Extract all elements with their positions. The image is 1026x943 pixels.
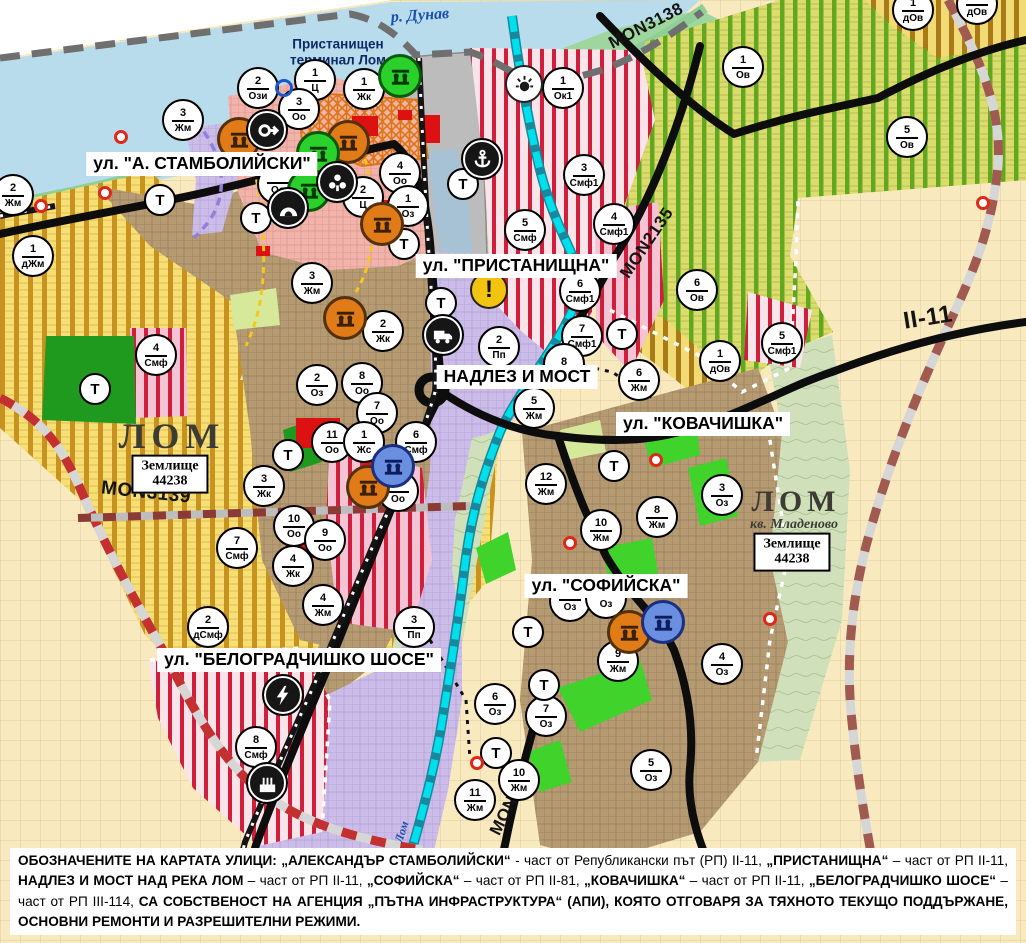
zone-number: 3: [581, 162, 587, 174]
zone-number: 5: [531, 395, 537, 407]
zone-number: 12: [540, 471, 552, 483]
zone-code: Оо: [287, 529, 301, 540]
fraction-bar: [304, 80, 326, 82]
fraction-bar: [508, 780, 530, 782]
transport-marker[interactable]: Т: [528, 669, 560, 701]
fraction-bar: [197, 627, 219, 629]
note-segment: „ПРИСТАНИЩНА“: [766, 853, 888, 868]
zone-number: 2: [360, 184, 366, 196]
fraction-bar: [552, 88, 574, 90]
zone-number: 8: [654, 504, 660, 516]
zone-number: 4: [320, 592, 326, 604]
zone-code: Смф1: [566, 294, 595, 305]
zone-marker[interactable]: 1дОв: [892, 0, 934, 31]
transport-marker[interactable]: Т: [598, 450, 630, 482]
zone-code: Оо: [391, 494, 405, 505]
fraction-bar: [535, 484, 557, 486]
zone-code: Жм: [538, 487, 554, 498]
poi-dot[interactable]: [470, 756, 484, 770]
zone-marker[interactable]: 7Смф: [216, 527, 258, 569]
street-label: НАДЛЕЗ И МОСТ: [437, 365, 598, 389]
road-label: II-11: [902, 300, 955, 335]
zone-code: Жм: [5, 198, 21, 209]
fraction-bar: [267, 182, 289, 184]
zone-marker[interactable]: 3Пп: [393, 606, 435, 648]
fraction-bar: [282, 566, 304, 568]
zone-marker[interactable]: 3Жм: [162, 99, 204, 141]
box-line1: Землище: [141, 459, 198, 474]
zone-marker[interactable]: 4Оз: [701, 643, 743, 685]
zone-marker[interactable]: 2Ози: [237, 67, 279, 109]
zone-marker[interactable]: 10Жм: [580, 509, 622, 551]
land-register-box: Землище44238: [753, 533, 830, 572]
street-label: ул. "ПРИСТАНИЩНА": [416, 254, 617, 278]
transport-marker[interactable]: Т: [79, 373, 111, 405]
zone-number: 1: [361, 76, 367, 88]
zone-marker[interactable]: 2Жм: [0, 174, 34, 216]
fraction-bar: [312, 605, 334, 607]
zone-number: 3: [719, 482, 725, 494]
zone-marker[interactable]: 8Жм: [636, 496, 678, 538]
fraction-bar: [253, 486, 275, 488]
note-segment: – част от РП II-11,: [243, 873, 366, 888]
zone-code: Жс: [357, 445, 372, 456]
fraction-bar: [351, 383, 373, 385]
fraction-bar: [306, 385, 328, 387]
zone-marker[interactable]: 1дОв: [699, 340, 741, 382]
zone-marker[interactable]: 2Пп: [478, 326, 520, 368]
fraction-bar: [523, 408, 545, 410]
fraction-bar: [283, 526, 305, 528]
zone-marker[interactable]: 8Смф: [235, 726, 277, 768]
zoning-map: 2Ози1Ц1Жк3Жм3ОоОо4Оо2Ц1Оз2Жм1дЖм4Смф1Ок1…: [0, 0, 1026, 943]
zone-number: 1: [560, 75, 566, 87]
water-label: Лом: [391, 819, 412, 845]
zone-number: 3: [309, 270, 315, 282]
zone-number: 1: [717, 348, 723, 360]
fraction-bar: [321, 442, 343, 444]
zone-number: 2: [205, 614, 211, 626]
zone-marker[interactable]: 4Смф: [135, 334, 177, 376]
zone-code: Ов: [736, 70, 750, 81]
fraction-bar: [247, 88, 269, 90]
street-label: ул. "А. СТАМБОЛИЙСКИ": [86, 152, 317, 176]
zone-code: Оз: [716, 667, 729, 678]
zone-marker[interactable]: 6Жм: [618, 359, 660, 401]
box-line2: 44238: [763, 552, 820, 567]
zone-marker[interactable]: 4Жк: [272, 545, 314, 587]
water-label: р. Дунав: [390, 5, 450, 27]
fraction-bar: [397, 206, 419, 208]
note-segment: – част от РП II-81,: [460, 873, 584, 888]
zone-number: 1: [312, 67, 318, 79]
zone-code: Оз: [311, 388, 324, 399]
zone-number: 1: [30, 243, 36, 255]
note-segment: - част от Републикански път (РП) II-11,: [511, 853, 767, 868]
zone-number: 5: [522, 217, 528, 229]
zone-marker[interactable]: 1дОв: [956, 0, 998, 25]
zone-code: Ов: [900, 140, 914, 151]
zone-code: Оз: [600, 599, 613, 610]
zone-number: 4: [719, 651, 725, 663]
zone-marker[interactable]: 5Жм: [513, 387, 555, 429]
fraction-bar: [896, 137, 918, 139]
zone-marker[interactable]: 1Ок1: [542, 67, 584, 109]
zone-marker[interactable]: 5Ов: [886, 116, 928, 158]
note-segment: „КОВАЧИШКА“: [584, 873, 685, 888]
zone-number: 7: [543, 703, 549, 715]
zone-marker[interactable]: 5Смф1: [761, 322, 803, 364]
zone-number: 8: [359, 370, 365, 382]
fraction-bar: [711, 495, 733, 497]
fraction-bar: [484, 704, 506, 706]
fraction-bar: [535, 716, 557, 718]
zone-code: Оз: [564, 602, 577, 613]
zone-code: Ц: [311, 83, 318, 94]
street-label: ул. "БЕЛОГРАДЧИШКО ШОСЕ": [157, 648, 441, 672]
note-segment: „СОФИЙСКА“: [367, 873, 460, 888]
zone-code: Жм: [526, 411, 542, 422]
zone-marker[interactable]: 2Оз: [296, 364, 338, 406]
zone-code: Жм: [610, 664, 626, 675]
fraction-bar: [353, 89, 375, 91]
street-label: ул. "СОФИЙСКА": [525, 574, 688, 598]
zone-code: Смф1: [600, 227, 629, 238]
zone-number: 2: [314, 372, 320, 384]
road-label: MON3138: [605, 0, 686, 53]
poi-dot[interactable]: [114, 130, 128, 144]
poi-dot[interactable]: [98, 186, 112, 200]
map-overlay: 2Ози1Ц1Жк3Жм3ОоОо4Оо2Ц1Оз2Жм1дЖм4Смф1Ок1…: [0, 0, 1026, 943]
zone-number: 10: [595, 517, 607, 529]
fraction-bar: [771, 343, 793, 345]
zone-code: Оз: [489, 707, 502, 718]
fraction-bar: [514, 230, 536, 232]
zone-code: Оз: [716, 498, 729, 509]
fraction-bar: [403, 627, 425, 629]
zone-code: Оз: [540, 719, 553, 730]
zone-marker[interactable]: 3Жк: [243, 465, 285, 507]
fraction-bar: [352, 197, 374, 199]
zone-number: 3: [180, 107, 186, 119]
zone-code: Оо: [318, 543, 332, 554]
zone-number: 1: [405, 193, 411, 205]
zone-marker[interactable]: 1Ов: [722, 46, 764, 88]
fraction-bar: [2, 195, 24, 197]
transport-marker[interactable]: Т: [425, 287, 457, 319]
zone-number: 4: [397, 160, 403, 172]
fraction-bar: [732, 67, 754, 69]
zone-marker[interactable]: 5Смф: [504, 209, 546, 251]
people-icon[interactable]: [318, 163, 356, 201]
fraction-bar: [709, 361, 731, 363]
poi-dot[interactable]: [34, 199, 48, 213]
poi-dot[interactable]: [763, 612, 777, 626]
zone-number: 7: [234, 535, 240, 547]
land-register-box: Землище44238: [131, 455, 208, 494]
poi-dot[interactable]: [563, 536, 577, 550]
box-line1: Землище: [763, 537, 820, 552]
fraction-bar: [288, 109, 310, 111]
zone-number: 6: [636, 367, 642, 379]
zone-code: Смф: [225, 551, 248, 562]
zone-number: 3: [411, 614, 417, 626]
zone-code: Жм: [593, 533, 609, 544]
fraction-bar: [405, 442, 427, 444]
fraction-bar: [573, 175, 595, 177]
zone-number: 4: [153, 342, 159, 354]
zone-code: Оз: [402, 209, 415, 220]
zone-number: 6: [577, 278, 583, 290]
note-segment: СА СОБСТВЕНОСТ НА АГЕНЦИЯ „ПЪТНА ИНФРАСТ…: [18, 894, 1008, 929]
transport-marker[interactable]: Т: [512, 616, 544, 648]
fraction-bar: [372, 331, 394, 333]
poi-dot[interactable]: [976, 196, 990, 210]
zone-number: 9: [322, 527, 328, 539]
sun-icon[interactable]: [505, 65, 543, 103]
zone-marker[interactable]: 7Оз: [525, 695, 567, 737]
zone-code: Ок1: [554, 91, 572, 102]
key-icon[interactable]: [248, 111, 286, 149]
zone-number: 6: [492, 691, 498, 703]
zone-marker[interactable]: 3Смф1: [563, 154, 605, 196]
zone-marker[interactable]: 3Оз: [701, 474, 743, 516]
zone-code: Жм: [304, 286, 320, 297]
transport-marker[interactable]: Т: [480, 737, 512, 769]
zone-number: 2: [496, 334, 502, 346]
zone-code: Смф: [144, 358, 167, 369]
zone-code: Жм: [467, 803, 483, 814]
zone-number: 8: [253, 734, 259, 746]
fraction-bar: [245, 747, 267, 749]
zone-number: 2: [380, 318, 386, 330]
zone-code: Оо: [292, 112, 306, 123]
zone-number: 10: [288, 513, 300, 525]
area-label: кв. Младеново: [750, 517, 838, 533]
zone-marker[interactable]: 12Жм: [525, 463, 567, 505]
zone-code: Жм: [511, 783, 527, 794]
zone-number: 7: [579, 323, 585, 335]
zone-number: 11: [469, 787, 481, 799]
zone-code: Жм: [315, 608, 331, 619]
fraction-bar: [387, 491, 409, 493]
zone-code: Жм: [649, 520, 665, 531]
note-segment: ОБОЗНАЧЕНИТЕ НА КАРТАТА УЛИЦИ: „АЛЕКСАНД…: [18, 853, 511, 868]
culture-monument-icon[interactable]: [360, 202, 404, 246]
fraction-bar: [301, 283, 323, 285]
fraction-bar: [902, 10, 924, 12]
fraction-bar: [22, 256, 44, 258]
zone-code: Смф1: [570, 178, 599, 189]
zone-number: 4: [611, 211, 617, 223]
zone-code: Пп: [407, 630, 420, 641]
zone-number: 5: [904, 124, 910, 136]
fraction-bar: [966, 4, 988, 6]
zone-code: Ов: [690, 293, 704, 304]
zone-marker[interactable]: 4Жм: [302, 584, 344, 626]
zone-marker[interactable]: 2Жк: [362, 310, 404, 352]
culture-monument-icon[interactable]: [371, 444, 415, 488]
culture-monument-icon[interactable]: [323, 296, 367, 340]
transport-marker[interactable]: Т: [606, 318, 638, 350]
fraction-bar: [389, 173, 411, 175]
zone-code: Жк: [357, 92, 371, 103]
fraction-bar: [464, 800, 486, 802]
zone-marker[interactable]: 1дЖм: [12, 235, 54, 277]
zone-code: дОв: [710, 364, 730, 375]
zone-marker[interactable]: 3Жм: [291, 262, 333, 304]
zone-code: дОв: [903, 13, 923, 24]
fraction-bar: [314, 540, 336, 542]
zone-code: Жк: [376, 334, 390, 345]
fraction-bar: [640, 770, 662, 772]
zone-code: Смф: [244, 750, 267, 761]
zone-number: 4: [290, 553, 296, 565]
point-icon[interactable]: [275, 79, 293, 97]
transport-marker[interactable]: Т: [272, 439, 304, 471]
terminal-line1: Пристанищен: [290, 36, 386, 52]
legend-note: ОБОЗНАЧЕНИТЕ НА КАРТАТА УЛИЦИ: „АЛЕКСАНД…: [10, 848, 1016, 935]
zone-number: 3: [296, 96, 302, 108]
zone-code: Жк: [257, 489, 271, 500]
zone-number: 1: [910, 0, 916, 9]
zone-code: дЖм: [22, 259, 45, 270]
fraction-bar: [607, 661, 629, 663]
zone-number: 1: [974, 0, 980, 3]
zone-code: дСмф: [193, 630, 223, 641]
zone-code: Жм: [631, 383, 647, 394]
fraction-bar: [628, 380, 650, 382]
zone-code: Оз: [645, 773, 658, 784]
zone-number: 11: [326, 429, 338, 441]
zone-number: 5: [779, 330, 785, 342]
zone-marker[interactable]: 2дСмф: [187, 606, 229, 648]
fraction-bar: [571, 336, 593, 338]
fraction-bar: [603, 224, 625, 226]
street-label: ул. "КОВАЧИШКА": [616, 412, 790, 436]
fraction-bar: [559, 599, 581, 601]
zone-number: 2: [10, 182, 16, 194]
zone-marker[interactable]: 4Смф1: [593, 203, 635, 245]
fraction-bar: [590, 530, 612, 532]
fraction-bar: [569, 291, 591, 293]
zone-number: 10: [513, 767, 525, 779]
fraction-bar: [646, 517, 668, 519]
fraction-bar: [172, 120, 194, 122]
zone-marker[interactable]: 11Жм: [454, 779, 496, 821]
poi-dot[interactable]: [649, 453, 663, 467]
zone-code: Пп: [492, 350, 505, 361]
note-segment: „БЕЛОГРАДЧИШКО ШОСЕ“: [809, 873, 996, 888]
note-segment: – част от РП II-11,: [888, 853, 1008, 868]
fraction-bar: [353, 442, 375, 444]
factory-icon[interactable]: [248, 764, 286, 802]
fraction-bar: [488, 347, 510, 349]
zone-code: Оо: [325, 445, 339, 456]
fraction-bar: [686, 290, 708, 292]
box-line2: 44238: [141, 474, 198, 489]
zone-number: 1: [740, 54, 746, 66]
zone-number: 6: [694, 277, 700, 289]
truck-icon[interactable]: [424, 316, 462, 354]
fraction-bar: [145, 355, 167, 357]
fraction-bar: [366, 413, 388, 415]
fraction-bar: [711, 664, 733, 666]
culture-monument-icon[interactable]: [641, 600, 685, 644]
zone-code: дОв: [967, 7, 987, 18]
note-segment: – част от РП II-11,: [685, 873, 808, 888]
zone-code: Жм: [175, 123, 191, 134]
zone-code: Жк: [286, 569, 300, 580]
zone-marker[interactable]: 6Оз: [474, 683, 516, 725]
zone-number: 3: [261, 473, 267, 485]
zone-code: Смф: [513, 233, 536, 244]
zone-number: 2: [255, 75, 261, 87]
cave-icon[interactable]: [269, 189, 307, 227]
zone-number: 7: [374, 400, 380, 412]
zone-marker[interactable]: 6Ов: [676, 269, 718, 311]
culture-monument-icon[interactable]: [378, 54, 422, 98]
zone-code: Смф1: [768, 346, 797, 357]
note-segment: НАДЛЕЗ И МОСТ НАД РЕКА ЛОМ: [18, 873, 243, 888]
zone-number: 6: [413, 429, 419, 441]
zone-number: 1: [361, 429, 367, 441]
power-icon[interactable]: [264, 676, 302, 714]
zone-number: 5: [648, 757, 654, 769]
zone-marker[interactable]: 5Оз: [630, 749, 672, 791]
transport-marker[interactable]: Т: [144, 184, 176, 216]
transport-marker[interactable]: Т: [240, 202, 272, 234]
zone-code: Ози: [249, 91, 268, 102]
anchor-icon[interactable]: [463, 140, 501, 178]
area-label: ЛОМ: [751, 485, 840, 519]
area-label: ЛОМ: [119, 415, 226, 457]
fraction-bar: [226, 548, 248, 550]
